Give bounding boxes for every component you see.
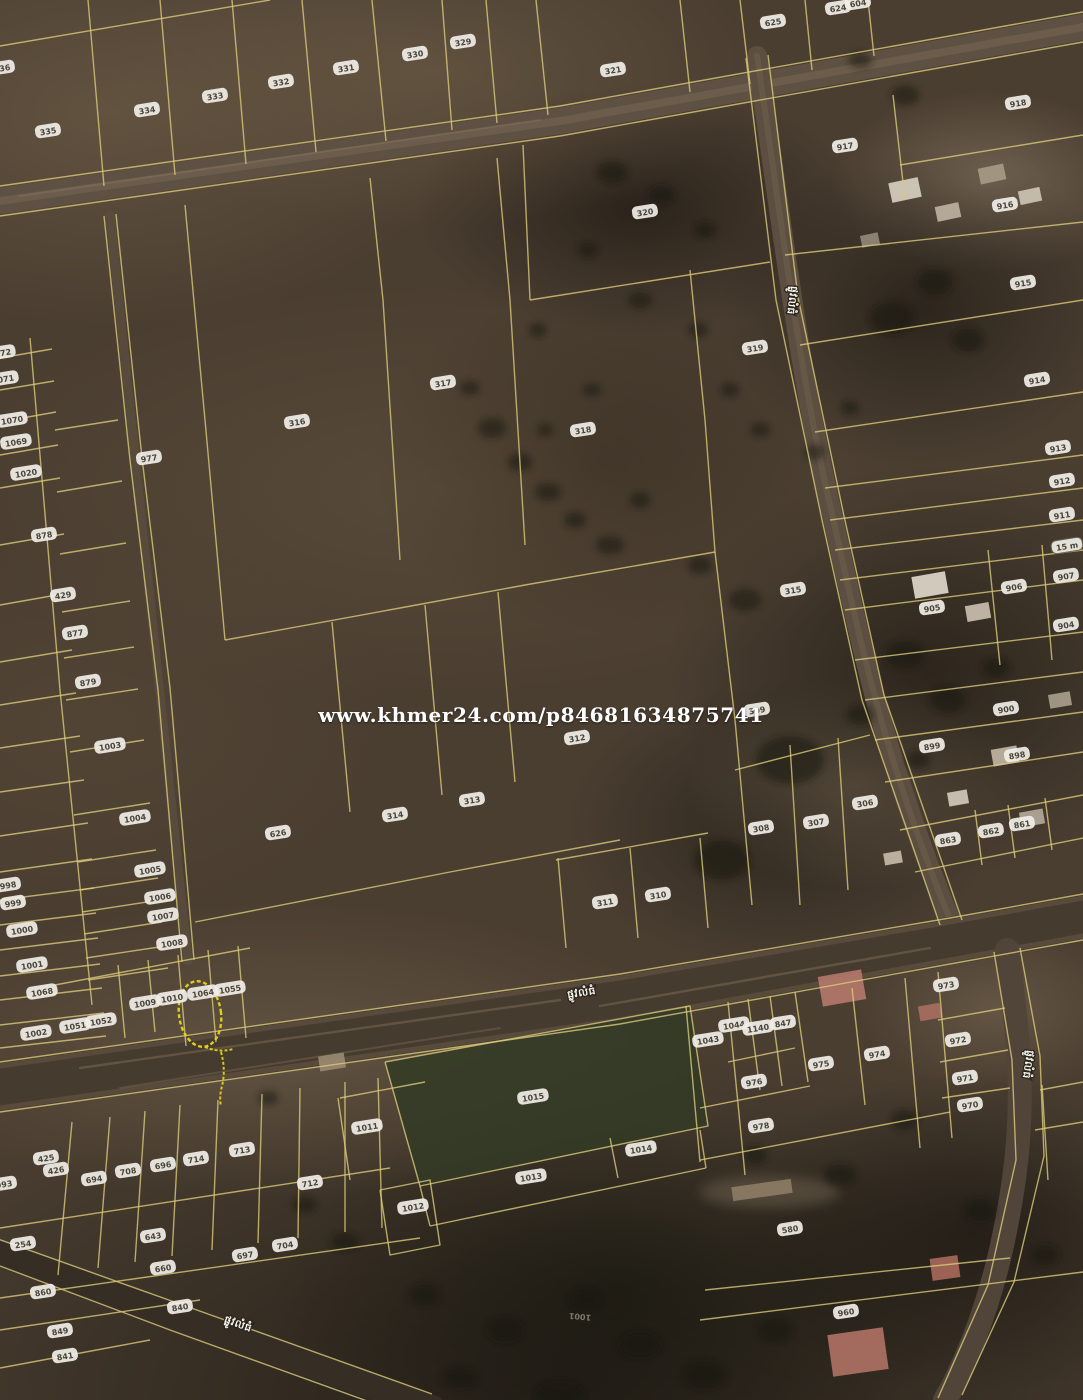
parcel-label: 849	[46, 1322, 74, 1339]
parcel-label: 331	[332, 59, 360, 76]
parcel-label: 334	[133, 101, 161, 118]
tree-blob	[293, 1197, 317, 1213]
building-roof	[918, 1003, 942, 1022]
tree-blob	[442, 1368, 478, 1388]
tree-blob	[688, 556, 712, 574]
parcel-label: 914	[1023, 371, 1051, 388]
building-roof	[827, 1327, 888, 1376]
svg-text:604: 604	[849, 0, 867, 9]
tree-blob	[537, 424, 553, 436]
tree-blob	[757, 1318, 793, 1342]
parcel-label: 971	[951, 1069, 979, 1086]
cadastral-overlay: 3363353343333323313303293216256246049189…	[0, 0, 1083, 1400]
parcel-label: 1064	[186, 984, 219, 1002]
tree-blob	[487, 1318, 523, 1342]
parcel-label: 319	[741, 339, 769, 356]
tree-blob	[578, 243, 598, 257]
parcel-label: 1013	[514, 1168, 547, 1186]
parcel-label: 1020	[9, 464, 42, 482]
parcel-label: 713	[228, 1141, 256, 1158]
tree-blob	[848, 52, 872, 68]
parcel-label: 877	[61, 624, 89, 641]
tree-blob	[952, 328, 984, 352]
tree-blob	[824, 1164, 856, 1186]
parcel-label: 696	[149, 1156, 177, 1173]
parcel-label: 899	[918, 737, 946, 754]
parcel-label: 1069	[0, 433, 32, 451]
parcel-label: 1055	[213, 980, 246, 998]
parcel-label: 714	[182, 1150, 210, 1167]
parcel-label: 973	[932, 976, 960, 993]
parcel-label: 861	[1008, 815, 1036, 832]
parcel-label: 308	[747, 819, 775, 836]
parcel-label: 314	[381, 806, 409, 823]
tree-blob	[478, 418, 506, 438]
tree-blob	[620, 1332, 660, 1358]
parcel-label: 580	[776, 1220, 804, 1237]
tree-blob	[917, 269, 953, 295]
parcel-label: 306	[851, 794, 879, 811]
tree-blob	[982, 658, 1010, 678]
tree-blob	[649, 186, 675, 204]
parcel-label: 1071	[0, 370, 19, 388]
tree-blob	[258, 1091, 278, 1105]
tree-blob	[460, 381, 480, 395]
parcel-label: 972	[944, 1031, 972, 1048]
parcel-label: 310	[644, 886, 672, 903]
parcel-label: 429	[49, 586, 77, 603]
parcel-label: 318	[569, 421, 597, 438]
parcel-label: 1072	[0, 344, 16, 362]
parcel-label: 311	[591, 893, 619, 910]
tree-blob	[1031, 1245, 1059, 1265]
tree-blob	[891, 85, 919, 105]
parcel-label: 970	[956, 1096, 984, 1113]
parcel-label: 1043	[691, 1031, 724, 1049]
tree-blob	[596, 536, 624, 554]
tree-blob	[841, 401, 859, 415]
tree-blob	[536, 1383, 584, 1400]
parcel-label: 860	[29, 1283, 57, 1300]
parcel-label: 862	[977, 822, 1005, 839]
parcel-label: 976	[740, 1073, 768, 1090]
watermark: www.khmer24.com/p84681634875741	[317, 703, 764, 727]
parcel-label: 712	[296, 1174, 324, 1191]
parcel-label: 697	[231, 1246, 259, 1263]
parcel-label: 604	[844, 0, 872, 11]
parcel-label: 329	[449, 33, 477, 50]
parcel-label: 317	[429, 374, 457, 391]
tree-blob	[529, 323, 547, 337]
parcel-label: 917	[831, 137, 859, 154]
parcel-label: 332	[267, 73, 295, 90]
building-roof	[965, 602, 991, 622]
tree-blob	[409, 1284, 441, 1306]
parcel-label: 708	[114, 1162, 142, 1179]
parcel-label: 316	[283, 413, 311, 430]
parcel-label: 878	[30, 526, 58, 543]
parcel-label: 960	[832, 1303, 860, 1320]
parcel-label: 904	[1052, 616, 1080, 633]
tree-blob	[628, 292, 652, 308]
tree-blob	[564, 512, 586, 528]
parcel-label: 315	[779, 581, 807, 598]
parcel-label: 704	[271, 1236, 299, 1253]
parcel-label: 978	[747, 1117, 775, 1134]
parcel-label: 879	[74, 673, 102, 690]
parcel-label: 643	[139, 1227, 167, 1244]
parcel-label: 975	[807, 1055, 835, 1072]
parcel-label: 321	[599, 61, 627, 78]
tree-blob	[729, 589, 761, 611]
tree-blob	[683, 1361, 727, 1389]
parcel-label: 330	[401, 45, 429, 62]
parcel-label: 1004	[118, 809, 151, 827]
parcel-label: 916	[991, 196, 1019, 213]
parcel-label: 841	[51, 1347, 79, 1364]
building-roof	[947, 789, 969, 806]
tree-blob	[756, 736, 824, 784]
parcel-label: 694	[80, 1170, 108, 1187]
parcel-label: 320	[631, 203, 659, 220]
parcel-label: 911	[1048, 506, 1076, 523]
tree-blob	[694, 222, 716, 238]
tree-blob	[750, 423, 770, 437]
parcel-label: 918	[1004, 94, 1032, 111]
parcel-label: 1003	[93, 737, 126, 755]
parcel-label: 1012	[396, 1198, 429, 1216]
parcel-label: 1002	[19, 1024, 52, 1042]
parcel-label: 906	[1000, 578, 1028, 595]
parcel-label: 335	[34, 122, 62, 139]
parcel-label: 912	[1048, 472, 1076, 489]
tree-blob	[569, 1289, 601, 1311]
parcel-label: 336	[0, 59, 16, 76]
parcel-label: 1011	[350, 1118, 383, 1136]
building-roof	[1048, 691, 1072, 709]
parcel-label: 625	[759, 13, 787, 30]
parcel-label: 307	[802, 813, 830, 830]
building-roof	[930, 1255, 961, 1281]
building-roof	[978, 163, 1007, 184]
building-roof	[883, 851, 903, 866]
parcel-label: 626	[264, 824, 292, 841]
tree-blob	[583, 384, 601, 396]
parcel-label: 974	[863, 1045, 891, 1062]
svg-text:1001: 1001	[568, 1311, 591, 1322]
satellite-map-image: 3363353343333323313303293216256246049189…	[0, 0, 1083, 1400]
building-roof	[1018, 187, 1042, 205]
tree-blob	[870, 302, 914, 334]
parcel-label: 312	[563, 729, 591, 746]
parcel-label: 905	[918, 599, 946, 616]
parcel-label: 915	[1009, 274, 1037, 291]
parcel-label: 977	[135, 449, 163, 466]
tree-blob	[630, 492, 650, 508]
parcel-label: 1068	[25, 983, 58, 1001]
tree-blob	[721, 383, 739, 397]
tree-blob	[743, 1146, 767, 1164]
parcel-label: 15 m	[1050, 537, 1083, 555]
parcel-label: 1001	[568, 1311, 591, 1322]
tree-blob	[688, 323, 708, 337]
parcel-label: 333	[201, 87, 229, 104]
parcel-label: 1070	[0, 411, 28, 429]
tree-blob	[906, 751, 930, 769]
parcel-label: 998	[0, 876, 22, 893]
parcel-label: 1006	[143, 888, 176, 906]
parcel-label: 863	[934, 831, 962, 848]
building-roof	[911, 571, 948, 599]
parcel-label: 254	[9, 1235, 37, 1252]
parcel-label: 913	[1044, 439, 1072, 456]
parcel-label: 900	[992, 700, 1020, 717]
parcel-label: 993	[0, 1175, 18, 1192]
tree-blob	[964, 1199, 996, 1221]
tree-blob	[596, 161, 628, 183]
parcel-label: 1007	[146, 907, 179, 925]
building-roof	[935, 202, 962, 222]
tree-blob	[535, 483, 561, 501]
parcel-label: 313	[458, 791, 486, 808]
parcel-label: 999	[0, 894, 27, 911]
parcel-label: 1010	[155, 989, 188, 1007]
parcel-label: 1005	[133, 861, 166, 879]
